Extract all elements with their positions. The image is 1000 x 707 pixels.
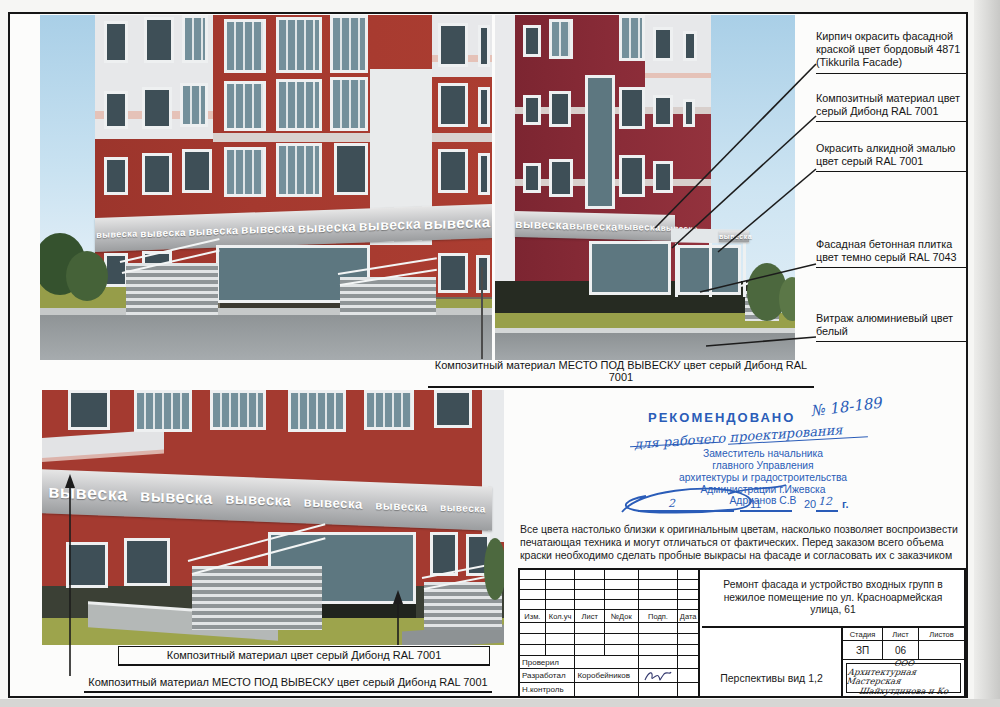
canopy-sign: вывеска [719,231,749,242]
annotation-brick-paint: Кирпич окрасить фасадной краской цвет бо… [816,30,966,74]
col-koluch: Кол.уч [546,610,576,622]
window [276,79,322,131]
sheets-value [919,641,964,659]
canopy-column [743,243,746,297]
canopy-column [675,243,678,297]
title-block: Изм. Кол.уч Лист №Док Подп. Дата Провери… [518,568,966,698]
window [478,87,490,127]
stamp-line-1: Заместитель начальника [628,448,898,459]
window [478,25,490,67]
pink-band [645,73,711,78]
window [142,87,172,129]
date-month: 11 [750,498,761,510]
window [180,83,208,127]
project-title: Ремонт фасада и устройство входных групп… [702,570,964,628]
sign-placeholder-text: вывеска [241,221,295,237]
window [619,155,645,197]
window [589,241,671,295]
window [438,149,468,193]
window [66,542,108,588]
stamp-signature [616,482,796,522]
window [364,390,414,430]
col-podp: Подп. [639,610,679,622]
window [182,149,212,193]
window [224,147,266,197]
scan-edge-bottom [0,699,1000,707]
col-ndok: №Док [605,610,639,622]
window [478,153,490,195]
window [523,163,541,193]
approval-stamp: РЕКОМЕНДОВАНО № 18-189 для рабочего прое… [628,398,928,518]
window [523,95,541,125]
stamp-line-2: главного Управления [628,460,898,471]
entrance-stairs [192,566,322,630]
window [549,91,571,127]
caption-bottom-boxed: Композитный материал цвет серый Дибонд R… [118,646,490,666]
window [585,75,615,209]
scanned-sheet: вывескавывескавывескавывескавывескавывес… [0,0,1000,707]
developer-signature [643,669,673,682]
window [142,153,172,195]
window [653,27,673,61]
window [330,77,368,131]
view-title: Перспективы вид 1,2 [702,660,843,696]
window [438,23,468,67]
window [523,25,541,57]
sign-placeholder-text: вывеска [375,498,428,513]
window [124,538,170,586]
developer-name: Коробейников [575,669,638,682]
window [104,21,128,63]
stage-value: ЗП [843,641,883,659]
date-line [638,510,734,512]
sign-placeholder-text: вывеска [298,218,356,235]
scan-edge-right [974,0,1000,707]
window [549,159,573,197]
window [334,143,368,195]
window [224,81,266,131]
date-day: 2 [668,497,675,510]
sign-placeholder-text: вывеска [719,233,752,240]
sign-placeholder-text: вывеска [225,490,291,509]
window [276,17,322,73]
window [182,15,208,63]
col-list: Лист [575,610,605,622]
org-name-line1: Архитектурная Мастерская [846,668,962,687]
window [276,143,322,197]
sheet-label: Лист [883,628,919,640]
canopy-column [709,243,712,297]
window [68,390,110,430]
tree [484,538,504,600]
window [288,390,346,432]
window [104,157,128,195]
window [653,161,673,193]
sign-placeholder-text: вывеска [618,222,661,233]
sign-placeholder-text: вывеска [440,501,486,514]
date-line [816,510,838,512]
window [134,390,192,432]
floor-band [213,133,492,142]
tree [66,251,108,301]
sheets-label: Листов [919,628,964,640]
window [476,255,490,293]
window [619,15,645,61]
window [104,91,128,129]
sign-placeholder-text: вывеска [359,216,422,234]
col-izm: Изм. [520,610,546,622]
date-century: 20 [804,498,816,510]
stamp-number: № 18-189 [809,394,882,421]
building-white-corner [495,15,515,287]
sheet-value: 06 [883,641,919,659]
road [495,333,795,360]
empty-cell [702,628,843,660]
window [210,390,266,430]
window [549,19,573,59]
color-disclaimer-note: Все цвета настолько близки к оригинальны… [520,523,962,561]
date-suffix: г. [842,498,849,510]
stamp-title: РЕКОМЕНДОВАНО [648,410,795,425]
revision-table: Изм. Кол.уч Лист №Док Подп. Дата Провери… [520,570,700,696]
sign-placeholder-text: вывеска [515,217,569,232]
render-perspective-2: вывескавывескавывескавывеска вывеска [495,15,795,360]
signage-band: вывескавывескавывескавывескавывескавывес… [42,469,492,530]
signage-band: вывескавывескавывескавывеска [515,211,675,241]
sign-placeholder-text: вывеска [569,219,618,232]
annotation-concrete-tile: Фасадная бетонная плитка цвет темно серы… [816,238,966,268]
window [438,83,468,127]
date-line [740,510,792,512]
caption-top-photo: Композитный материал МЕСТО ПОД ВЫВЕСКУ ц… [428,359,814,388]
role-ncontrol: Н.контроль [520,683,575,696]
render-closeup: вывескавывескавывескавывескавывескавывес… [42,390,504,645]
road [40,315,492,360]
sign-placeholder-text: вывеска [424,213,491,232]
window [330,15,368,73]
window [438,253,468,293]
window [434,390,472,428]
window [430,532,458,576]
sign-placeholder-text: вывеска [140,486,213,508]
date-year: 12 [818,495,832,508]
entrance-stairs [126,263,218,315]
annotation-alkyd-enamel: Окрасить алкидной эмалью цвет серый RAL … [816,142,966,172]
lamp-post [481,267,483,359]
organization-cell: ООО Архитектурная Мастерская Шайхутдинов… [843,660,964,696]
window [224,19,266,73]
role-checked: Проверил [520,656,575,668]
sign-placeholder-text: вывеска [48,481,128,505]
sign-placeholder-text: вывеска [96,228,138,239]
window [653,95,673,127]
sign-placeholder-text: вывеска [140,226,186,239]
window [683,31,697,61]
sign-placeholder-text: вывеска [189,224,239,238]
caption-bottom-underlined: Композитный материал МЕСТО ПОД ВЫВЕСКУ ц… [84,676,492,693]
sign-placeholder-text: вывеска [304,494,363,511]
window [104,253,128,287]
annotation-composite: Композитный материал цвет серый Дибонд R… [816,92,966,122]
window [683,99,695,127]
stage-label: Стадия [843,628,883,640]
role-developed: Разработал [520,669,575,682]
window [144,17,174,63]
window [619,87,645,129]
render-perspective-1: вывескавывескавывескавывескавывескавывес… [40,15,492,360]
annotation-vitrage: Витраж алюминиевый цвет белый [816,312,966,342]
col-data: Дата [678,610,698,622]
org-name-line2: Шайхутдинова и Ко [858,687,949,696]
